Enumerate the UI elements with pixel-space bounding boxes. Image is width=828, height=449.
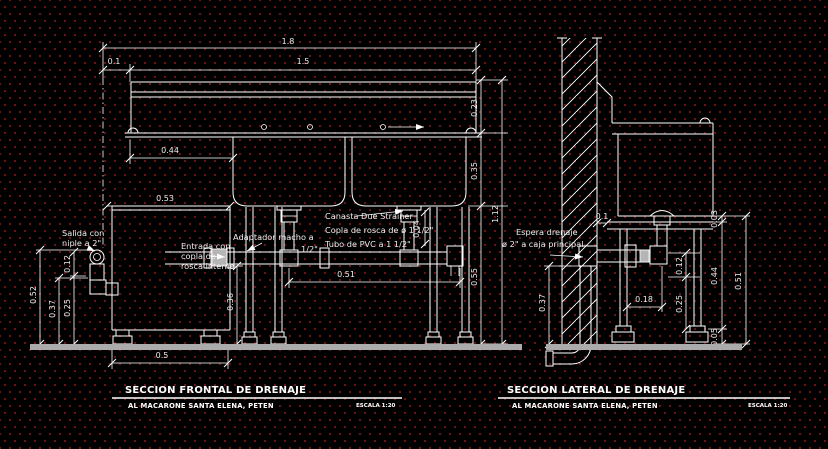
outlet-niple-assembly bbox=[90, 250, 118, 295]
dim-0-37-lateral: 0.37 bbox=[538, 294, 547, 312]
dim-0-05: 0.05 bbox=[710, 328, 719, 346]
dim-0-12-front: 0.12 bbox=[63, 255, 72, 273]
dim-0-51-lateral: 0.51 bbox=[734, 272, 743, 290]
front-scale: ESCALA 1:20 bbox=[356, 403, 396, 409]
label-espera-1: Espera drenaje bbox=[516, 227, 578, 237]
lateral-title: SECCION LATERAL DE DRENAJE bbox=[507, 385, 685, 396]
dim-0-25-front: 0.25 bbox=[63, 299, 72, 317]
front-left-dimensions: 0.52 0.37 0.12 0.25 bbox=[29, 246, 88, 348]
counter-top-front bbox=[125, 128, 482, 137]
dim-0-1-lateral: 0.1 bbox=[596, 212, 609, 221]
stand-lateral bbox=[607, 222, 713, 342]
sink-lateral bbox=[597, 82, 713, 246]
label-copla: Copla de rosca de ø 1 1/2" bbox=[325, 225, 433, 235]
dim-0-36: 0.36 bbox=[226, 293, 235, 311]
floor-line-lateral bbox=[546, 344, 742, 350]
lateral-scale: ESCALA 1:20 bbox=[748, 403, 788, 409]
dim-0-23: 0.23 bbox=[470, 99, 479, 117]
dim-1-5: 1.5 bbox=[297, 57, 310, 66]
label-entrada-3: rosca interna bbox=[181, 261, 235, 271]
dim-1-8: 1.8 bbox=[282, 37, 295, 46]
cad-viewport: 1.8 0.1 1.5 bbox=[0, 0, 828, 449]
drainage-sections-drawing: 1.8 0.1 1.5 bbox=[0, 0, 828, 449]
dim-0-5: 0.5 bbox=[156, 351, 169, 360]
floor-line-front bbox=[30, 344, 522, 350]
cabinet-front bbox=[112, 206, 230, 344]
label-canasta: Canasta Due Strainer bbox=[325, 211, 413, 221]
lateral-section-drawing: 0.1 0.18 0.12 0.25 0.03 0.44 0.05 0.51 0… bbox=[502, 38, 750, 366]
front-title: SECCION FRONTAL DE DRENAJE bbox=[125, 385, 306, 396]
sink-backsplash-front bbox=[131, 82, 476, 133]
dim-0-12-lateral: 0.12 bbox=[675, 257, 684, 275]
label-entrada-1: Entrada con bbox=[181, 241, 230, 251]
dim-0-1-front: 0.1 bbox=[108, 57, 121, 66]
pipe-end-cap bbox=[546, 351, 553, 366]
dim-0-25-lateral: 0.25 bbox=[675, 295, 684, 313]
label-adaptador-1: Adaptador macho a bbox=[233, 232, 314, 242]
dim-0-03: 0.03 bbox=[710, 210, 719, 228]
front-right-dimensions: 0.23 0.35 0.55 1.12 bbox=[468, 76, 508, 348]
dim-0-44-lateral: 0.44 bbox=[710, 267, 719, 285]
dim-0-44: 0.44 bbox=[161, 146, 179, 155]
dim-0-51-front: 0.51 bbox=[337, 270, 355, 279]
label-salida-1: Salida con bbox=[62, 228, 104, 238]
front-annotations: Salida con niple a 2" Entrada con copla … bbox=[62, 211, 433, 271]
dim-0-52: 0.52 bbox=[29, 286, 38, 304]
lateral-location: AL MACARONE SANTA ELENA, PETEN bbox=[512, 402, 658, 410]
dim-0-18: 0.18 bbox=[635, 295, 653, 304]
sink-bowls-front bbox=[233, 137, 466, 206]
front-location: AL MACARONE SANTA ELENA, PETEN bbox=[128, 402, 274, 410]
front-title-block: SECCION FRONTAL DE DRENAJE AL MACARONE S… bbox=[112, 385, 402, 410]
faucet-hole bbox=[262, 125, 267, 130]
label-espera-2: ø 2" a caja principal bbox=[502, 239, 584, 249]
label-tubo: Tubo de PVC a 1 1/2" bbox=[324, 239, 411, 249]
label-salida-2: niple a 2" bbox=[62, 238, 101, 248]
dim-0-53: 0.53 bbox=[156, 194, 174, 203]
faucet-hole bbox=[308, 125, 313, 130]
dim-1-12: 1.12 bbox=[491, 205, 500, 223]
faucet-hole bbox=[381, 125, 386, 130]
front-section-drawing: 1.8 0.1 1.5 bbox=[29, 37, 508, 369]
label-adaptador-2: 1/2" bbox=[301, 244, 318, 254]
strainer-dome-lateral bbox=[650, 211, 674, 217]
lateral-title-block: SECCION LATERAL DE DRENAJE AL MACARONE S… bbox=[498, 385, 790, 410]
dim-0-37-front: 0.37 bbox=[48, 300, 57, 318]
dim-0-35: 0.35 bbox=[470, 162, 479, 180]
dim-0-55: 0.55 bbox=[470, 268, 479, 286]
pipe-elbow bbox=[447, 246, 463, 266]
